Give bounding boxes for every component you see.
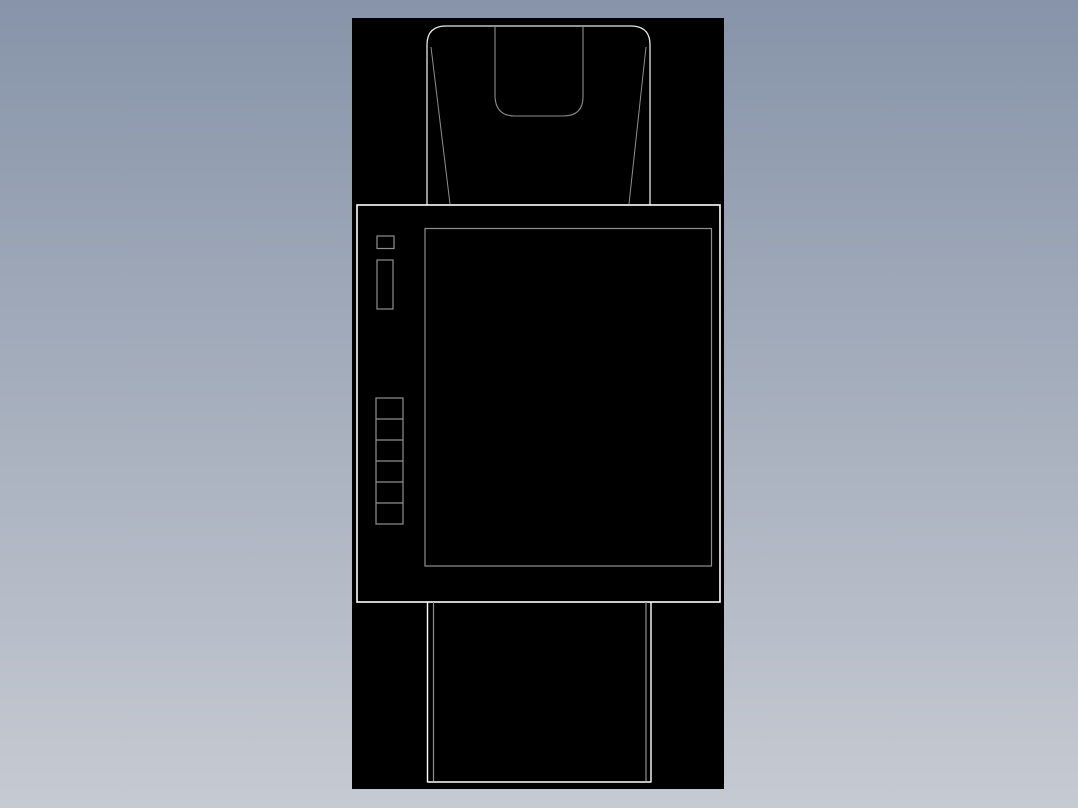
hood-notch [495,26,583,116]
page: { "meta": { "title": "CAD drawing previe… [0,0,1078,808]
indicator-tall [377,260,393,309]
drawing-canvas [352,18,724,789]
hood-taper-line-left [431,47,450,204]
indicator-small [377,236,394,249]
screen-outline [425,229,712,567]
viewer-background [0,0,1078,808]
cad-drawing [352,18,724,789]
hood-taper-line-right [629,47,646,204]
panel-outline [357,205,720,602]
